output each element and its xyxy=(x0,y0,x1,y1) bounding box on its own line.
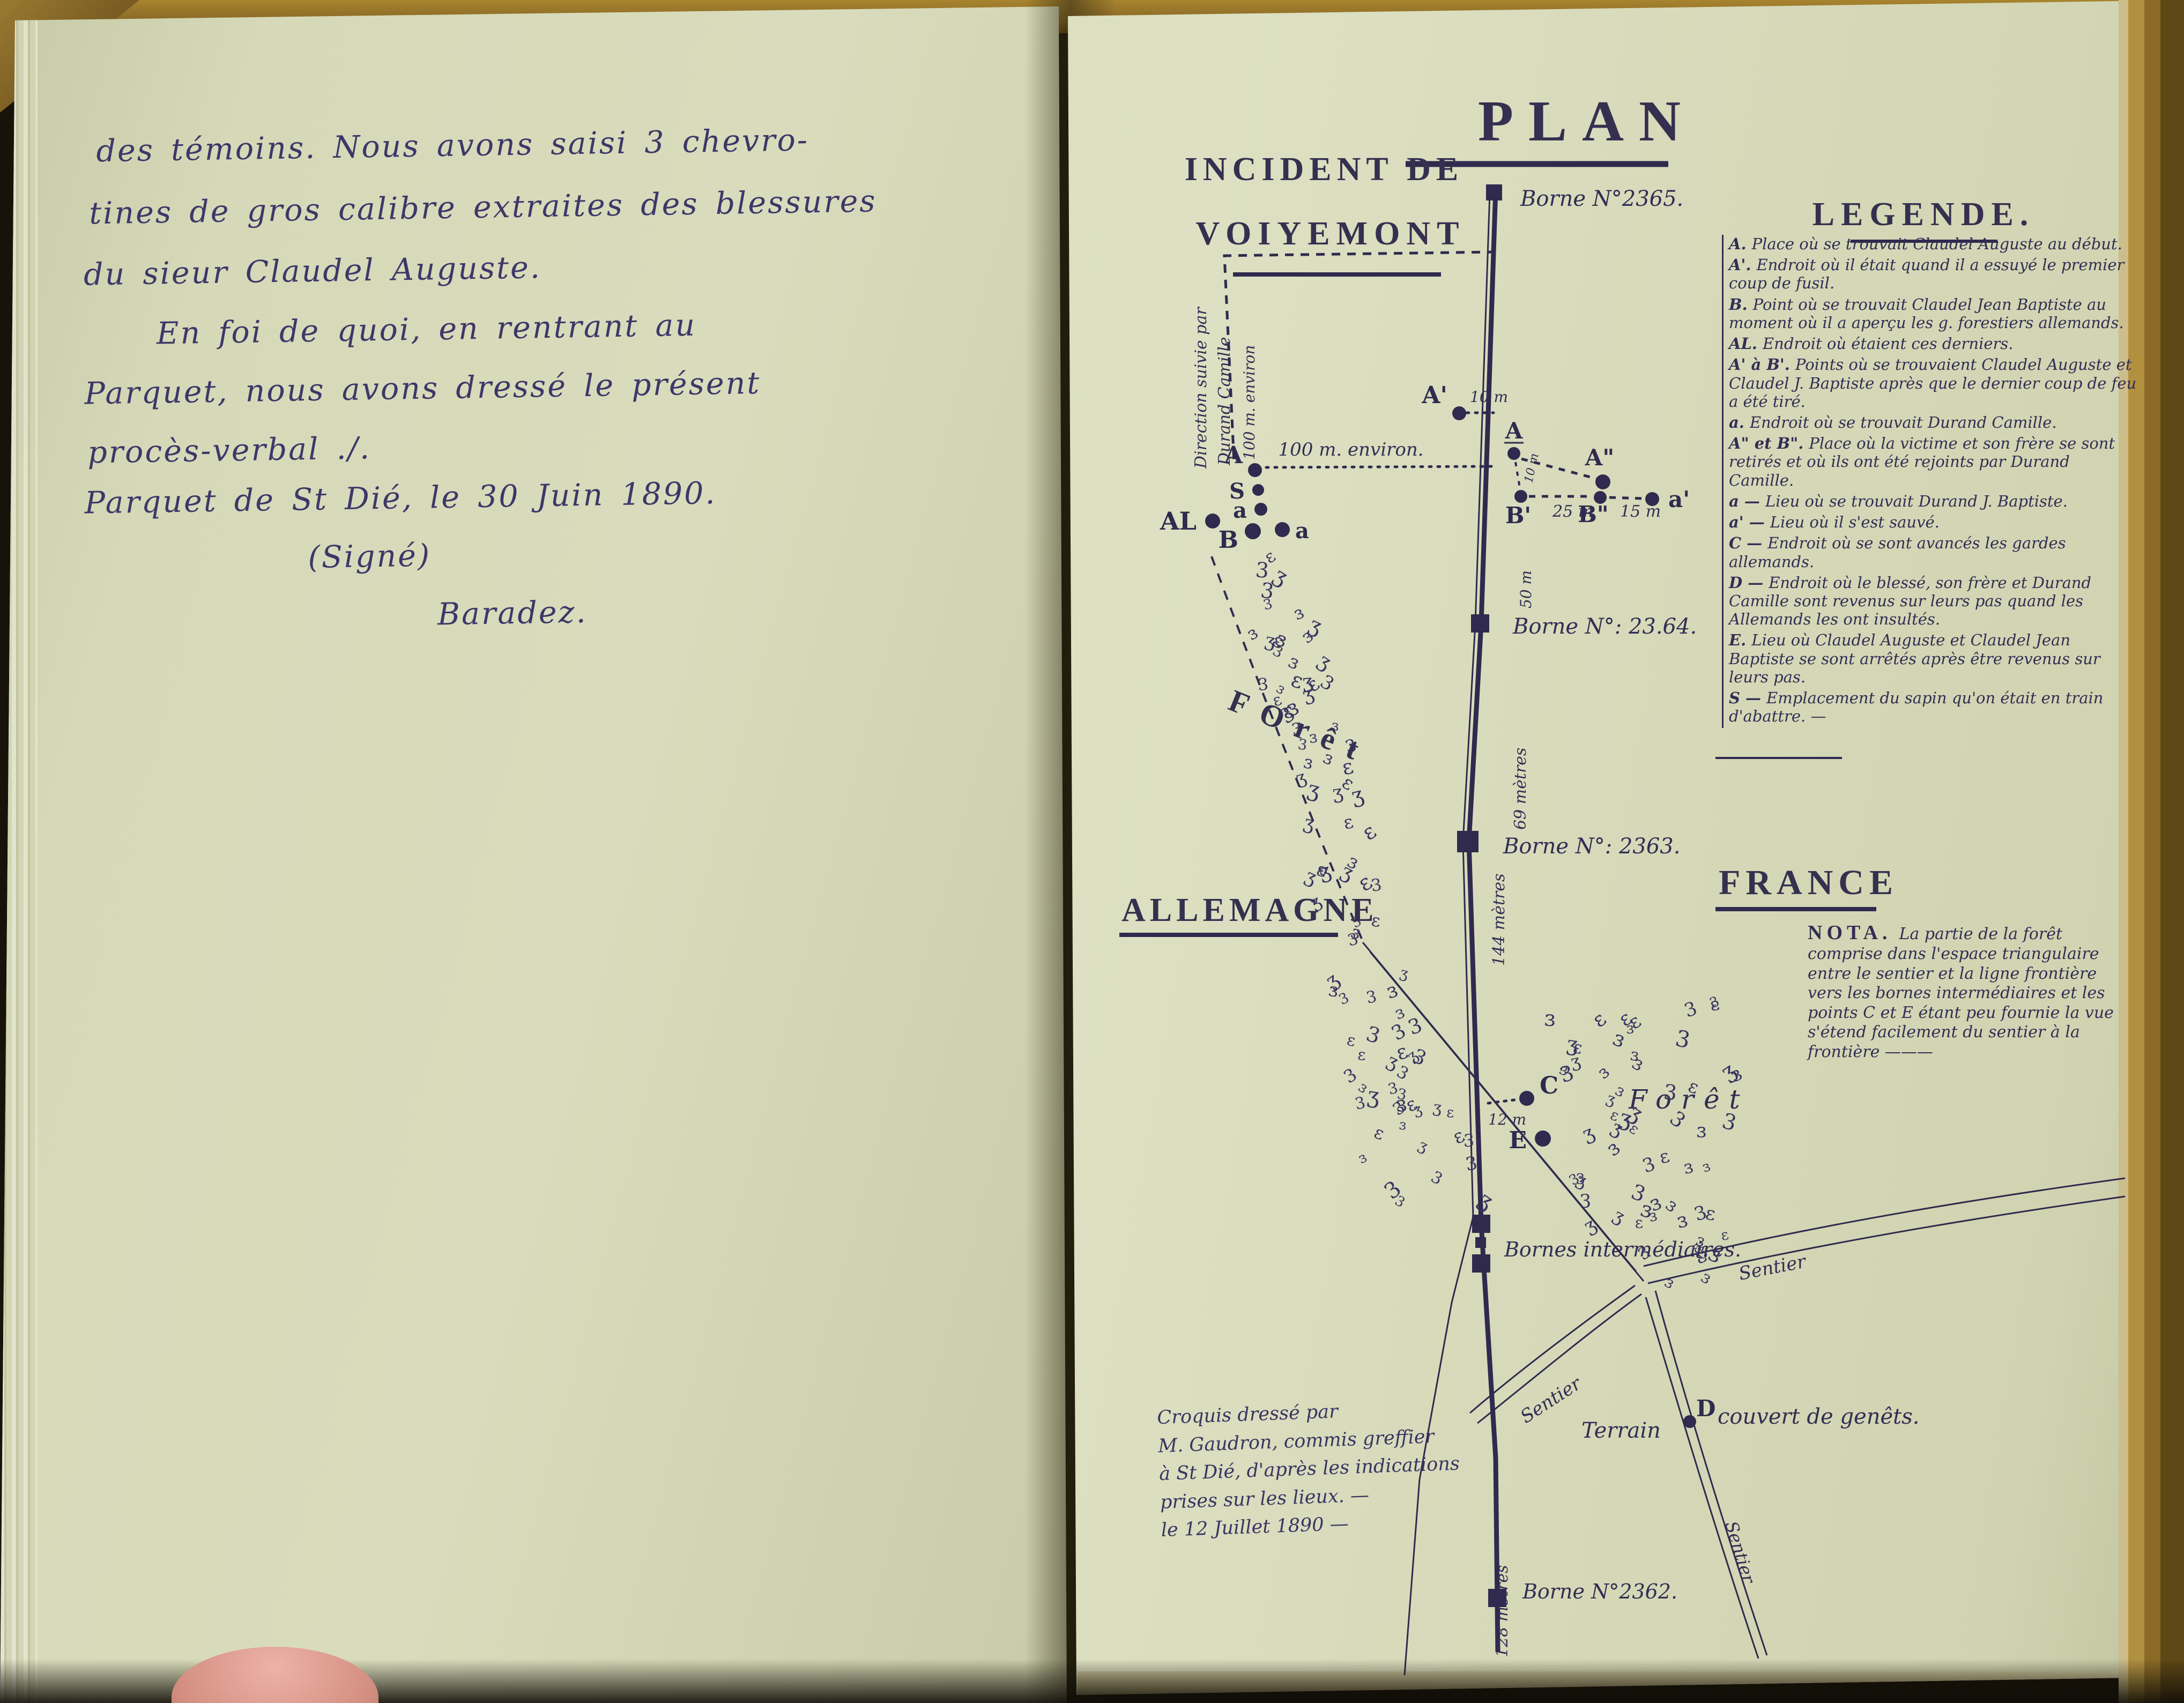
forest-glyph: 3 xyxy=(1340,1064,1361,1088)
forest-glyph: ɜ xyxy=(1609,1025,1628,1052)
legend-text: Lieu où Claudel Auguste et Claudel Jean … xyxy=(1729,631,2100,686)
forest-glyph: ɜ xyxy=(1543,1005,1556,1031)
point-A-prime-dot xyxy=(1452,406,1466,420)
sentier-south-line2 xyxy=(1646,1297,1758,1659)
forest-glyph: ε xyxy=(1657,1145,1672,1168)
legend-text: Endroit où le blessé, son frère et Duran… xyxy=(1729,574,2091,628)
forest-glyph: ɜ xyxy=(1392,1001,1407,1023)
forest-glyph: ε xyxy=(1357,1045,1366,1064)
forest-glyph: 3 xyxy=(1257,675,1269,695)
sentier-west-label: Sentier xyxy=(1517,1372,1586,1427)
legend-text: Endroit où se sont avancés les gardes al… xyxy=(1729,534,2066,570)
a-to-road-dotted xyxy=(1266,466,1494,467)
point-AL-label: AL xyxy=(1160,507,1197,536)
legend-key: AL. xyxy=(1729,334,1763,353)
distance-12m: 12 m xyxy=(1488,1111,1526,1128)
forest-glyph: 3 xyxy=(1707,993,1722,1012)
point-a2-dot xyxy=(1275,522,1290,537)
forest-glyph: 3 xyxy=(1662,1080,1678,1105)
forest-glyph: 3 xyxy=(1682,998,1700,1022)
archival-photo-scene: des témoins. Nous avons saisi 3 chevro- … xyxy=(0,0,2184,1703)
legend-text: Lieu où se trouvait Durand J. Baptiste. xyxy=(1765,492,2068,510)
forest-glyph: ɜ xyxy=(1331,717,1339,734)
borne-intermediaire-marker xyxy=(1472,1215,1490,1233)
legend-entry: A'.Endroit où il était quand il a essuyé… xyxy=(1729,256,2137,292)
borne-intermediaire-marker xyxy=(1475,1237,1486,1248)
point-B-dot xyxy=(1245,523,1261,539)
point-D-label: D xyxy=(1696,1395,1715,1422)
legend-key: A" et B". xyxy=(1729,434,1809,452)
point-E-label: E xyxy=(1509,1127,1527,1154)
legend-text: Endroit où se trouvait Durand Camille. xyxy=(1750,413,2057,432)
point-C-dot xyxy=(1519,1091,1534,1106)
forest-glyph: ε xyxy=(1341,811,1355,834)
nota-text: La partie de la forêt comprise dans l'es… xyxy=(1808,925,2114,1061)
forest-glyph: ε xyxy=(1635,1213,1643,1232)
map-subtitle-line1: INCIDENT DE xyxy=(1185,151,1464,188)
point-a-label: a xyxy=(1233,498,1247,523)
point-B-label: B xyxy=(1219,526,1238,554)
forest-glyph: ε xyxy=(1446,1104,1454,1121)
point-A-second-label: A" xyxy=(1585,444,1614,471)
dash-Bsecond-to-aprime xyxy=(1609,497,1644,499)
legend-text: Endroit où il était quand il a essuyé le… xyxy=(1729,256,2124,292)
forest-glyph: ɜ xyxy=(1700,1158,1712,1176)
legend-entry: A' à B'.Points où se trouvaient Claudel … xyxy=(1729,355,2137,411)
legend-key: D — xyxy=(1729,574,1769,592)
forest-glyph: ɜ xyxy=(1243,622,1261,644)
borne-2363-marker xyxy=(1457,831,1479,852)
forest-glyph: ε xyxy=(1587,1007,1610,1032)
nota-block: NOTA.La partie de la forêt comprise dans… xyxy=(1808,921,2127,1062)
legend-entry: a.Endroit où se trouvait Durand Camille. xyxy=(1729,413,2137,432)
point-B-prime-dot xyxy=(1514,490,1527,503)
legend-key: a. xyxy=(1729,413,1750,432)
point-B-prime-label: B' xyxy=(1505,502,1531,529)
forest-glyph: ʒ xyxy=(1474,1186,1499,1215)
terrain-label-right: couvert de genêts. xyxy=(1718,1404,1919,1429)
direction-dashed-line xyxy=(1224,252,1496,463)
forest-glyph: 3 xyxy=(1353,1094,1367,1114)
forest-glyph: 3 xyxy=(1579,1191,1591,1213)
forest-glyph: ɜ xyxy=(1698,1267,1715,1288)
map-subtitle-line2: VOIYEMONT xyxy=(1196,215,1466,252)
forest-glyph: 3 xyxy=(1364,987,1378,1008)
distance-10m-small: 10 m xyxy=(1522,452,1541,484)
legend-entry: C —Endroit où se sont avancés les gardes… xyxy=(1729,534,2137,570)
legend-entry: E.Lieu où Claudel Auguste et Claudel Jea… xyxy=(1729,631,2137,686)
legend-text: Place où se trouvait Claudel Auguste au … xyxy=(1752,235,2122,253)
forest-glyph: ε xyxy=(1345,1030,1357,1050)
forest-glyph: ɜ xyxy=(1696,1119,1707,1142)
point-A-road-dot xyxy=(1507,447,1520,460)
forest-glyph: 3 xyxy=(1428,1167,1445,1189)
forest-glyph: 3 xyxy=(1576,1171,1586,1188)
forest-glyph: ʒ xyxy=(1579,1121,1598,1146)
point-a2-label: a xyxy=(1295,518,1309,544)
legend-key: a' — xyxy=(1729,513,1770,531)
forest-glyph: ʒ xyxy=(1305,776,1323,803)
forest-glyph: ʒ xyxy=(1610,1204,1629,1228)
segment-50m-label: 50 m xyxy=(1517,570,1535,608)
point-A-dot xyxy=(1248,463,1262,477)
point-A-second-dot xyxy=(1595,474,1610,489)
legend-text: Point où se trouvait Claudel Jean Baptis… xyxy=(1729,295,2124,332)
distance-25m: 25 m xyxy=(1552,502,1593,521)
legend-title: LEGENDE. xyxy=(1812,196,2035,233)
point-A-label: A xyxy=(1224,442,1243,469)
legend-entry: B.Point où se trouvait Claudel Jean Bapt… xyxy=(1729,295,2137,332)
legend-entry: D —Endroit où le blessé, son frère et Du… xyxy=(1729,574,2137,629)
legend-text: Lieu où il s'est sauvé. xyxy=(1770,513,1940,531)
legend-key: S — xyxy=(1729,689,1766,707)
forest-glyph: ɜ xyxy=(1290,601,1306,624)
forest-glyph: ʒ xyxy=(1416,1136,1431,1156)
legend-key: C — xyxy=(1729,534,1767,552)
forest-glyph: ɜ xyxy=(1682,1156,1695,1179)
forest-glyph: ɜ xyxy=(1383,978,1400,1003)
point-C-label: C xyxy=(1540,1072,1558,1099)
borne-2363-label: Borne N°: 2363. xyxy=(1503,834,1680,859)
forest-glyph: ɜ xyxy=(1661,1273,1678,1293)
forest-glyph: 3 xyxy=(1363,1022,1383,1048)
segment-144m-label: 144 mètres xyxy=(1490,873,1509,966)
forest-glyph: ɜ xyxy=(1601,1136,1624,1161)
point-AL-dot xyxy=(1205,514,1220,529)
dash-A-to-Bprime xyxy=(1516,462,1520,488)
forest-glyph: ɜ xyxy=(1626,1019,1635,1037)
borne-2362-label: Borne N°2362. xyxy=(1522,1580,1677,1603)
forest-glyph: ɜ xyxy=(1674,1208,1690,1233)
forest-glyph: 3 xyxy=(1463,1131,1474,1151)
legend-text: Emplacement du sapin qu'on était en trai… xyxy=(1729,689,2103,725)
nota-title: NOTA. xyxy=(1808,921,1899,944)
forest-glyph: 3 xyxy=(1254,558,1270,583)
forest-glyph: ε xyxy=(1371,1121,1387,1144)
legend-entry: S —Emplacement du sapin qu'on était en t… xyxy=(1729,689,2137,725)
forest-glyph: ʒ xyxy=(1302,812,1317,835)
borne-2364-marker xyxy=(1471,614,1489,633)
distance-10m-label: 10 m xyxy=(1470,388,1508,406)
distance-15m: 15 m xyxy=(1620,502,1661,521)
legend-entry: a' —Lieu où il s'est sauvé. xyxy=(1729,513,2137,531)
region-allemagne-label: ALLEMAGNE xyxy=(1121,892,1378,928)
forest-glyph: ɜ xyxy=(1593,1061,1613,1083)
borne-2365-label: Borne N°2365. xyxy=(1520,187,1683,211)
region-france-label: FRANCE xyxy=(1719,863,1898,902)
map-title: PLAN xyxy=(1478,90,1696,153)
forest-glyph: ε xyxy=(1357,819,1380,846)
legend-key: a — xyxy=(1729,492,1765,510)
point-E-dot xyxy=(1535,1131,1551,1147)
forest-glyph: ʒ xyxy=(1398,964,1410,983)
forest-glyph: ʒ xyxy=(1314,649,1336,674)
legend-block: A.Place où se trouvait Claudel Auguste a… xyxy=(1722,235,2137,728)
point-a-prime-label: a' xyxy=(1668,486,1690,512)
segment-69m-label: 69 mètres xyxy=(1511,748,1530,830)
point-A-prime-label: A' xyxy=(1421,382,1447,409)
direction-label-1: Direction suivie par xyxy=(1192,307,1210,469)
point-D-dot xyxy=(1683,1415,1696,1428)
point-A-road-label: A xyxy=(1505,418,1524,444)
legend-entry: A" et B".Place où la victime et son frèr… xyxy=(1729,434,2137,489)
forest-glyph: 3 xyxy=(1673,1025,1692,1053)
forest-glyph: 3 xyxy=(1640,1153,1658,1177)
legend-key: E. xyxy=(1729,631,1751,649)
borne-intermediaire-marker xyxy=(1472,1254,1490,1273)
forest-glyph: ɜ xyxy=(1355,1149,1369,1167)
distance-100m-vertical: 100 m. environ xyxy=(1240,345,1258,460)
forest-glyph: ɜ xyxy=(1398,1117,1407,1134)
segment-128m-label: 128 mètres xyxy=(1493,1565,1512,1657)
borne-2365-marker xyxy=(1486,184,1502,200)
legend-key: A. xyxy=(1729,235,1752,253)
sentier-south-label: Sentier xyxy=(1721,1519,1759,1586)
legend-key: A' à B'. xyxy=(1729,355,1795,374)
legend-text: Endroit où étaient ces derniers. xyxy=(1763,334,2014,353)
legend-entry: AL.Endroit où étaient ces derniers. xyxy=(1729,334,2137,353)
point-S-dot xyxy=(1252,484,1264,496)
credit-block: Croquis dressé par M. Gaudron, commis gr… xyxy=(1157,1392,1505,1545)
legend-key: A'. xyxy=(1729,256,1756,274)
forest-glyph: ʒ xyxy=(1432,1097,1444,1117)
forest-glyph: 3 xyxy=(1336,990,1351,1008)
point-a-dot xyxy=(1254,503,1267,516)
distance-100m-row: 100 m. environ. xyxy=(1278,439,1423,460)
terrain-label-left: Terrain xyxy=(1581,1418,1661,1443)
legend-key: B. xyxy=(1729,295,1753,314)
legend-entry: A.Place où se trouvait Claudel Auguste a… xyxy=(1729,235,2137,253)
legend-entry: a —Lieu où se trouvait Durand J. Baptist… xyxy=(1729,492,2137,510)
borne-2364-label: Borne N°: 23.64. xyxy=(1512,614,1697,639)
